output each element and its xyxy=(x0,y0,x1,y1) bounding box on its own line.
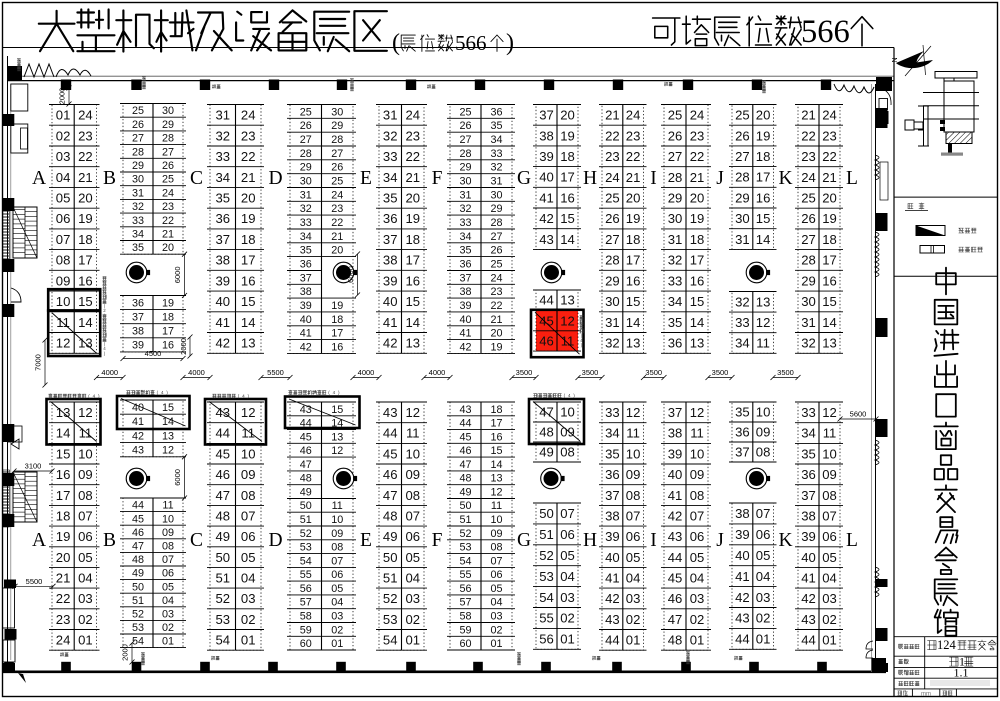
svg-text:53: 53 xyxy=(300,542,312,554)
svg-text:36: 36 xyxy=(459,258,471,270)
svg-text:08: 08 xyxy=(56,253,71,268)
svg-text:11: 11 xyxy=(756,336,770,351)
svg-text:08: 08 xyxy=(241,488,256,503)
svg-text:37: 37 xyxy=(132,312,144,324)
svg-text:39: 39 xyxy=(801,529,816,544)
svg-text:21: 21 xyxy=(801,108,816,123)
svg-text:38: 38 xyxy=(459,286,471,298)
svg-text:15: 15 xyxy=(331,404,343,416)
svg-text:13: 13 xyxy=(162,430,174,442)
svg-text:14: 14 xyxy=(162,416,174,428)
svg-text:46: 46 xyxy=(132,527,144,539)
svg-text:07: 07 xyxy=(241,509,256,524)
svg-text:09: 09 xyxy=(560,425,575,440)
svg-text:58: 58 xyxy=(300,611,312,623)
svg-text:03: 03 xyxy=(490,611,502,623)
svg-text:30: 30 xyxy=(735,211,750,226)
svg-text:E: E xyxy=(360,530,372,551)
svg-text:5500: 5500 xyxy=(26,577,43,586)
svg-text:23: 23 xyxy=(605,149,620,164)
svg-text:01: 01 xyxy=(78,633,93,648)
svg-text:06: 06 xyxy=(560,527,575,542)
svg-text:35: 35 xyxy=(383,191,398,206)
svg-text:28: 28 xyxy=(300,148,312,160)
svg-text:24: 24 xyxy=(78,108,93,123)
svg-text:44: 44 xyxy=(216,426,231,441)
svg-text:04: 04 xyxy=(822,571,837,586)
svg-text:14: 14 xyxy=(756,232,771,247)
svg-text:32: 32 xyxy=(459,203,471,215)
svg-text:C: C xyxy=(190,530,203,551)
svg-text:02: 02 xyxy=(560,611,575,626)
svg-text:58: 58 xyxy=(459,611,471,623)
svg-text:50: 50 xyxy=(132,581,144,593)
svg-text:15: 15 xyxy=(756,211,771,226)
svg-text:25: 25 xyxy=(459,106,471,118)
svg-text:40: 40 xyxy=(383,294,398,309)
svg-text:12: 12 xyxy=(331,445,343,457)
svg-text:35: 35 xyxy=(300,245,312,257)
svg-text:31: 31 xyxy=(132,187,144,199)
svg-text:57: 57 xyxy=(300,597,312,609)
svg-text:37: 37 xyxy=(459,272,471,284)
svg-text:03: 03 xyxy=(56,149,71,164)
svg-text:33: 33 xyxy=(735,315,750,330)
svg-text:42: 42 xyxy=(459,341,471,353)
svg-text:46: 46 xyxy=(216,467,231,482)
svg-text:51: 51 xyxy=(216,571,231,586)
svg-text:39: 39 xyxy=(132,340,144,352)
svg-text:41: 41 xyxy=(300,328,312,340)
svg-text:19: 19 xyxy=(490,341,502,353)
svg-text:38: 38 xyxy=(216,253,231,268)
svg-text:05: 05 xyxy=(78,550,93,565)
svg-text:42: 42 xyxy=(735,590,750,605)
svg-text:03: 03 xyxy=(560,590,575,605)
svg-text:24: 24 xyxy=(406,108,421,123)
svg-text:12: 12 xyxy=(626,405,641,420)
svg-text:06: 06 xyxy=(690,529,705,544)
svg-text:34: 34 xyxy=(216,170,231,185)
svg-text:41: 41 xyxy=(801,571,816,586)
svg-text:47: 47 xyxy=(668,612,683,627)
svg-text:33: 33 xyxy=(216,149,231,164)
svg-text:20: 20 xyxy=(756,108,771,123)
svg-text:03: 03 xyxy=(690,591,705,606)
svg-text:17: 17 xyxy=(78,253,93,268)
svg-text:11: 11 xyxy=(823,426,837,441)
svg-text:3500: 3500 xyxy=(712,368,729,377)
svg-text:55: 55 xyxy=(300,569,312,581)
svg-text:08: 08 xyxy=(162,541,174,553)
svg-text:3500: 3500 xyxy=(516,368,533,377)
svg-text:26: 26 xyxy=(132,119,144,131)
svg-text:31: 31 xyxy=(216,108,231,123)
svg-text:04: 04 xyxy=(690,571,705,586)
svg-text:01: 01 xyxy=(162,636,174,648)
svg-text:10: 10 xyxy=(162,513,174,525)
svg-text:23: 23 xyxy=(626,128,641,143)
svg-text:24: 24 xyxy=(241,108,256,123)
svg-text:02: 02 xyxy=(756,611,771,626)
svg-text:51: 51 xyxy=(132,595,144,607)
svg-text:42: 42 xyxy=(216,336,231,351)
svg-text:25: 25 xyxy=(735,108,750,123)
svg-text:16: 16 xyxy=(626,273,641,288)
svg-text:30: 30 xyxy=(162,105,174,117)
svg-text:40: 40 xyxy=(735,548,750,563)
svg-text:17: 17 xyxy=(560,170,575,185)
svg-text:4: 4 xyxy=(568,393,571,398)
svg-text:30: 30 xyxy=(605,294,620,309)
svg-text:52: 52 xyxy=(459,528,471,540)
svg-text:50: 50 xyxy=(539,506,554,521)
svg-text:30: 30 xyxy=(801,294,816,309)
svg-text:36: 36 xyxy=(300,258,312,270)
svg-text:A: A xyxy=(32,168,46,189)
svg-text:02: 02 xyxy=(331,624,343,636)
svg-text:05: 05 xyxy=(241,550,256,565)
svg-text:37: 37 xyxy=(300,272,312,284)
svg-text:20: 20 xyxy=(78,191,93,206)
svg-text:44: 44 xyxy=(539,293,554,308)
svg-text:54: 54 xyxy=(539,590,554,605)
svg-text:40: 40 xyxy=(459,314,471,326)
svg-text:32: 32 xyxy=(383,128,398,143)
svg-text:36: 36 xyxy=(668,336,683,351)
svg-text:48: 48 xyxy=(132,554,144,566)
svg-text:19: 19 xyxy=(78,211,93,226)
svg-text:mm: mm xyxy=(921,692,931,698)
svg-text:15: 15 xyxy=(78,294,93,309)
svg-text:33: 33 xyxy=(300,217,312,229)
svg-text:53: 53 xyxy=(132,622,144,634)
svg-text:33: 33 xyxy=(490,148,502,160)
svg-text:59: 59 xyxy=(300,624,312,636)
svg-text:31: 31 xyxy=(668,232,683,247)
svg-text:26: 26 xyxy=(801,211,816,226)
svg-text:22: 22 xyxy=(626,149,641,164)
svg-text:02: 02 xyxy=(56,128,71,143)
svg-text:17: 17 xyxy=(331,328,343,340)
svg-text:02: 02 xyxy=(162,622,174,634)
svg-text:29: 29 xyxy=(331,120,343,132)
svg-text:K: K xyxy=(778,530,792,551)
svg-text:06: 06 xyxy=(241,529,256,544)
svg-text:F: F xyxy=(432,168,443,189)
svg-text:L: L xyxy=(846,168,858,189)
svg-text:3500: 3500 xyxy=(777,368,794,377)
svg-text:39: 39 xyxy=(383,273,398,288)
svg-text:56: 56 xyxy=(459,583,471,595)
svg-text:16: 16 xyxy=(756,190,771,205)
svg-text:08: 08 xyxy=(490,542,502,554)
svg-text:44: 44 xyxy=(668,550,683,565)
svg-text:02: 02 xyxy=(78,612,93,627)
svg-text:37: 37 xyxy=(801,488,816,503)
svg-text:23: 23 xyxy=(241,128,256,143)
svg-text:14: 14 xyxy=(241,315,256,330)
svg-text:39: 39 xyxy=(605,529,620,544)
svg-text:09: 09 xyxy=(331,528,343,540)
svg-text:44: 44 xyxy=(605,633,620,648)
svg-text:07: 07 xyxy=(406,509,421,524)
svg-text:41: 41 xyxy=(668,488,683,503)
svg-text:05: 05 xyxy=(822,550,837,565)
svg-text:10: 10 xyxy=(331,514,343,526)
svg-text:01: 01 xyxy=(756,632,771,647)
svg-text:07: 07 xyxy=(490,555,502,567)
svg-text:38: 38 xyxy=(539,128,554,143)
svg-text:19: 19 xyxy=(822,211,837,226)
svg-text:17: 17 xyxy=(490,418,502,430)
svg-text:23: 23 xyxy=(331,203,343,215)
svg-text:06: 06 xyxy=(406,529,421,544)
svg-text:26: 26 xyxy=(605,211,620,226)
svg-text:27: 27 xyxy=(735,149,750,164)
svg-text:34: 34 xyxy=(490,134,502,146)
svg-text:34: 34 xyxy=(735,336,750,351)
svg-text:30: 30 xyxy=(300,176,312,188)
svg-text:48: 48 xyxy=(383,509,398,524)
svg-text:18: 18 xyxy=(490,404,502,416)
svg-text:38: 38 xyxy=(668,426,683,441)
svg-text:10: 10 xyxy=(78,446,93,461)
svg-text:03: 03 xyxy=(241,591,256,606)
svg-text:39: 39 xyxy=(300,300,312,312)
svg-text:06: 06 xyxy=(822,529,837,544)
svg-text:02: 02 xyxy=(626,612,641,627)
svg-text:19: 19 xyxy=(626,211,641,226)
svg-text:04: 04 xyxy=(560,569,575,584)
svg-text:40: 40 xyxy=(216,294,231,309)
svg-text:15: 15 xyxy=(560,211,575,226)
svg-text:27: 27 xyxy=(668,149,683,164)
svg-text:19: 19 xyxy=(756,128,771,143)
svg-text:B: B xyxy=(103,168,116,189)
svg-text:12: 12 xyxy=(56,336,71,351)
svg-text:06: 06 xyxy=(331,569,343,581)
svg-text:09: 09 xyxy=(756,425,771,440)
svg-text:D: D xyxy=(268,168,282,189)
svg-text:3500: 3500 xyxy=(582,368,599,377)
svg-text:31: 31 xyxy=(300,189,312,201)
svg-text:I: I xyxy=(650,168,657,189)
svg-text:52: 52 xyxy=(383,591,398,606)
svg-text:17: 17 xyxy=(626,253,641,268)
svg-text:09: 09 xyxy=(162,527,174,539)
svg-text:12: 12 xyxy=(560,313,575,328)
svg-text:59: 59 xyxy=(459,624,471,636)
svg-text:09: 09 xyxy=(690,467,705,482)
svg-text:41: 41 xyxy=(735,569,750,584)
svg-text:34: 34 xyxy=(605,426,620,441)
svg-text:41: 41 xyxy=(132,416,144,428)
svg-text:24: 24 xyxy=(822,108,837,123)
svg-text:34: 34 xyxy=(132,229,144,241)
svg-text:29: 29 xyxy=(668,191,683,206)
svg-text:4000: 4000 xyxy=(358,368,375,377)
svg-text:42: 42 xyxy=(383,336,398,351)
svg-text:28: 28 xyxy=(331,134,343,146)
svg-text:05: 05 xyxy=(690,550,705,565)
svg-text:49: 49 xyxy=(383,529,398,544)
svg-text:20: 20 xyxy=(406,191,421,206)
svg-text:566: 566 xyxy=(801,14,850,50)
svg-text:29: 29 xyxy=(605,273,620,288)
svg-text:44: 44 xyxy=(459,418,471,430)
svg-text:22: 22 xyxy=(241,149,256,164)
svg-text:05: 05 xyxy=(331,583,343,595)
svg-text:28: 28 xyxy=(605,253,620,268)
svg-text:13: 13 xyxy=(406,336,421,351)
svg-text:4000: 4000 xyxy=(188,368,205,377)
svg-text:32: 32 xyxy=(216,128,231,143)
svg-text:(: ( xyxy=(392,30,400,56)
svg-text:34: 34 xyxy=(801,426,816,441)
svg-text:05: 05 xyxy=(490,583,502,595)
svg-text:07: 07 xyxy=(822,509,837,524)
svg-text:03: 03 xyxy=(756,590,771,605)
svg-text:04: 04 xyxy=(56,170,71,185)
svg-text:46: 46 xyxy=(539,334,554,349)
svg-text:45: 45 xyxy=(459,431,471,443)
svg-text:16: 16 xyxy=(690,273,705,288)
svg-text:44: 44 xyxy=(801,633,816,648)
svg-text:01: 01 xyxy=(241,633,256,648)
svg-text:30: 30 xyxy=(132,174,144,186)
svg-text:42: 42 xyxy=(605,591,620,606)
svg-text:41: 41 xyxy=(459,328,471,340)
svg-text:41: 41 xyxy=(383,315,398,330)
svg-text:16: 16 xyxy=(56,467,71,482)
svg-text:04: 04 xyxy=(331,597,343,609)
svg-text:01: 01 xyxy=(822,633,837,648)
svg-text:36: 36 xyxy=(490,106,502,118)
svg-text:41: 41 xyxy=(539,190,554,205)
svg-text:47: 47 xyxy=(459,459,471,471)
svg-text:01: 01 xyxy=(560,632,575,647)
svg-text:06: 06 xyxy=(756,527,771,542)
svg-text:28: 28 xyxy=(801,253,816,268)
svg-text:12: 12 xyxy=(406,405,421,420)
svg-text:21: 21 xyxy=(690,170,705,185)
svg-text:17: 17 xyxy=(406,253,421,268)
svg-text:33: 33 xyxy=(801,405,816,420)
svg-text:4500: 4500 xyxy=(145,349,162,358)
svg-text:06: 06 xyxy=(78,529,93,544)
svg-text:566: 566 xyxy=(455,31,487,55)
svg-text:56: 56 xyxy=(539,632,554,647)
svg-text:16: 16 xyxy=(406,273,421,288)
svg-text:33: 33 xyxy=(459,217,471,229)
svg-text:50: 50 xyxy=(459,500,471,512)
svg-text:18: 18 xyxy=(56,509,71,524)
svg-text:42: 42 xyxy=(801,591,816,606)
svg-text:29: 29 xyxy=(459,162,471,174)
svg-text:11: 11 xyxy=(332,500,343,512)
svg-text:36: 36 xyxy=(605,467,620,482)
svg-text:49: 49 xyxy=(300,487,312,499)
svg-text:60: 60 xyxy=(459,638,471,650)
svg-text:01: 01 xyxy=(406,633,421,648)
svg-text:10: 10 xyxy=(241,446,256,461)
svg-text:4: 4 xyxy=(93,394,96,399)
svg-text:24: 24 xyxy=(626,108,641,123)
svg-text:55: 55 xyxy=(539,611,554,626)
svg-text:35: 35 xyxy=(132,242,144,254)
svg-text:45: 45 xyxy=(216,446,231,461)
svg-text:22: 22 xyxy=(331,217,343,229)
svg-text:17: 17 xyxy=(56,488,71,503)
svg-text:15: 15 xyxy=(162,402,174,414)
svg-text:50: 50 xyxy=(383,550,398,565)
svg-text:22: 22 xyxy=(690,149,705,164)
svg-text:35: 35 xyxy=(735,405,750,420)
svg-text:42: 42 xyxy=(539,211,554,226)
svg-text:27: 27 xyxy=(300,134,312,146)
svg-text:33: 33 xyxy=(383,149,398,164)
svg-text:32: 32 xyxy=(132,201,144,213)
svg-text:46: 46 xyxy=(459,445,471,457)
svg-text:20: 20 xyxy=(690,191,705,206)
svg-text:13: 13 xyxy=(690,336,705,351)
svg-text:19: 19 xyxy=(56,529,71,544)
svg-text:21: 21 xyxy=(822,170,837,185)
svg-text:40: 40 xyxy=(300,314,312,326)
svg-text:14: 14 xyxy=(690,315,705,330)
svg-text:07: 07 xyxy=(560,506,575,521)
svg-text:04: 04 xyxy=(78,571,93,586)
svg-text:03: 03 xyxy=(406,591,421,606)
svg-text:31: 31 xyxy=(383,108,398,123)
svg-text:24: 24 xyxy=(490,272,502,284)
svg-text:54: 54 xyxy=(300,555,312,567)
svg-text:07: 07 xyxy=(331,555,343,567)
svg-text:19: 19 xyxy=(560,128,575,143)
svg-text:43: 43 xyxy=(383,405,398,420)
svg-text:03: 03 xyxy=(331,611,343,623)
svg-text:18: 18 xyxy=(162,312,174,324)
svg-text:31: 31 xyxy=(801,315,816,330)
svg-text:37: 37 xyxy=(735,445,750,460)
svg-text:10: 10 xyxy=(756,405,771,420)
svg-text:19: 19 xyxy=(241,211,256,226)
svg-text:33: 33 xyxy=(605,405,620,420)
svg-text:42: 42 xyxy=(300,341,312,353)
svg-text:38: 38 xyxy=(383,253,398,268)
svg-text:08: 08 xyxy=(626,488,641,503)
svg-text:E: E xyxy=(360,168,372,189)
svg-text:50: 50 xyxy=(216,550,231,565)
svg-text:09: 09 xyxy=(626,467,641,482)
svg-text:36: 36 xyxy=(216,211,231,226)
svg-text:33: 33 xyxy=(132,215,144,227)
svg-text:20: 20 xyxy=(560,108,575,123)
svg-text:37: 37 xyxy=(668,405,683,420)
svg-text:45: 45 xyxy=(539,313,554,328)
svg-text:18: 18 xyxy=(626,232,641,247)
svg-text:27: 27 xyxy=(162,146,174,158)
svg-text:41: 41 xyxy=(605,571,620,586)
svg-text:15: 15 xyxy=(241,294,256,309)
svg-text:28: 28 xyxy=(132,146,144,158)
svg-text:03: 03 xyxy=(78,591,93,606)
svg-text:12: 12 xyxy=(241,405,256,420)
svg-text:13: 13 xyxy=(490,473,502,485)
svg-text:08: 08 xyxy=(406,488,421,503)
svg-text:50: 50 xyxy=(300,500,312,512)
